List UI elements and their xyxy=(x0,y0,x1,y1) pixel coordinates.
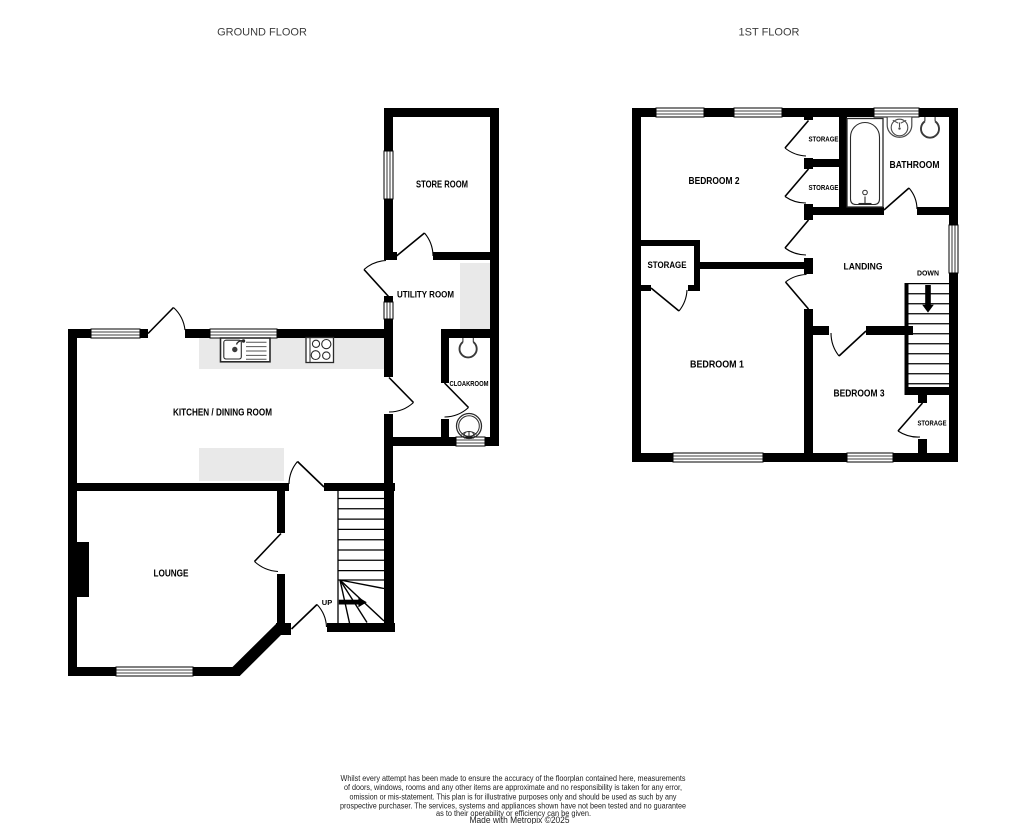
svg-text:BATHROOM: BATHROOM xyxy=(890,159,940,171)
svg-text:BEDROOM 1: BEDROOM 1 xyxy=(690,359,744,371)
svg-text:UTILITY ROOM: UTILITY ROOM xyxy=(397,290,454,300)
svg-text:STORAGE: STORAGE xyxy=(648,260,687,270)
svg-text:BEDROOM 2: BEDROOM 2 xyxy=(689,175,740,187)
svg-text:Made with Metropix ©2025: Made with Metropix ©2025 xyxy=(470,815,570,824)
svg-text:LANDING: LANDING xyxy=(844,262,883,273)
svg-text:STORE ROOM: STORE ROOM xyxy=(416,179,468,191)
svg-text:STORAGE: STORAGE xyxy=(809,183,839,192)
svg-text:BEDROOM 3: BEDROOM 3 xyxy=(834,388,885,400)
svg-text:UP: UP xyxy=(322,598,332,607)
svg-text:KITCHEN / DINING ROOM: KITCHEN / DINING ROOM xyxy=(173,408,272,419)
svg-text:omission or mis-statement. Thi: omission or mis-statement. This plan is … xyxy=(350,792,677,801)
svg-text:LOUNGE: LOUNGE xyxy=(154,568,189,580)
svg-text:STORAGE: STORAGE xyxy=(809,135,839,144)
svg-text:DOWN: DOWN xyxy=(917,269,939,278)
svg-text:CLOAKROOM: CLOAKROOM xyxy=(450,379,489,388)
svg-text:GROUND FLOOR: GROUND FLOOR xyxy=(217,27,307,39)
svg-text:STORAGE: STORAGE xyxy=(918,419,947,428)
svg-text:of doors, windows, rooms and a: of doors, windows, rooms and any other i… xyxy=(344,783,682,792)
svg-text:1ST FLOOR: 1ST FLOOR xyxy=(739,27,800,39)
svg-text:Whilst every attempt has been: Whilst every attempt has been made to en… xyxy=(341,774,686,783)
